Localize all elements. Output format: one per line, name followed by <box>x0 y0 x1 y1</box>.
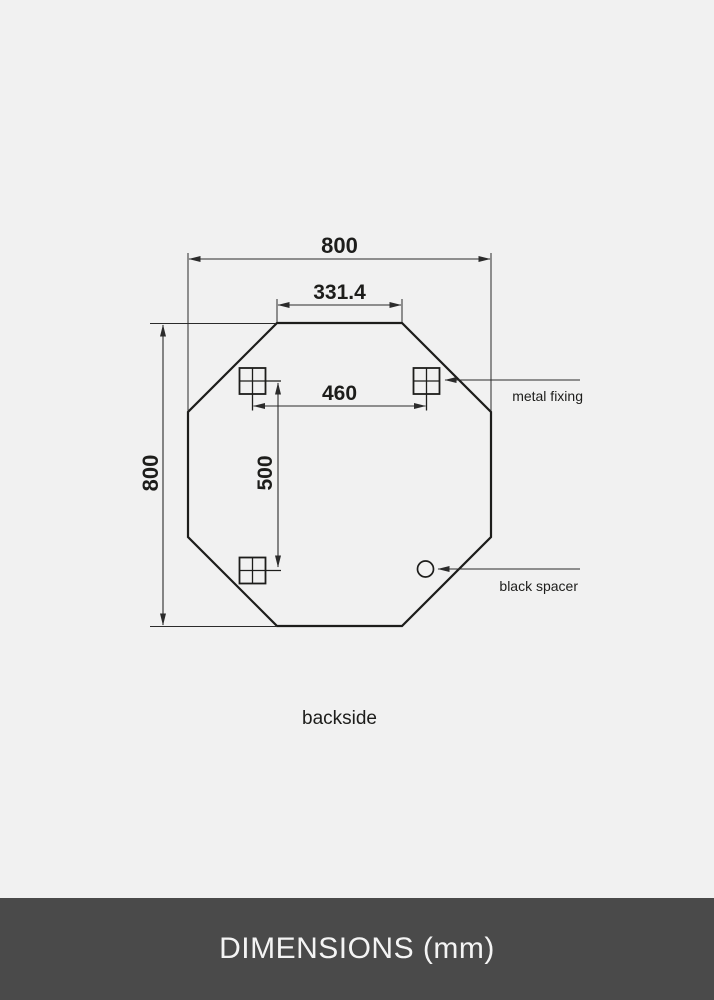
dimension-label-overall-height: 800 <box>138 455 163 492</box>
dimension-diagram: 800 331.4 800 460 500 <box>0 0 714 898</box>
callout-label-metal-fixing: metal fixing <box>512 388 583 404</box>
view-label: backside <box>302 708 377 729</box>
callout-black-spacer: black spacer <box>438 569 580 594</box>
metal-fixing-marker-top-right <box>414 368 440 411</box>
dimension-top-edge: 331.4 <box>277 281 402 322</box>
callout-label-black-spacer: black spacer <box>499 578 578 594</box>
metal-fixing-marker-bottom-left <box>240 558 282 584</box>
footer-title: DIMENSIONS (mm) <box>219 932 495 966</box>
dimension-label-overall-width: 800 <box>321 233 358 258</box>
dimension-label-fixing-span-vertical: 500 <box>254 455 277 490</box>
mirror-outline <box>188 323 491 626</box>
dimension-label-fixing-span-horizontal: 460 <box>322 382 357 405</box>
footer-bar: DIMENSIONS (mm) <box>0 898 714 1000</box>
callout-metal-fixing: metal fixing <box>445 380 583 404</box>
metal-fixing-marker-top-left <box>240 368 282 411</box>
dimension-fixing-span-vertical: 500 <box>254 383 278 567</box>
dimension-label-top-edge: 331.4 <box>313 281 366 304</box>
black-spacer-marker <box>418 561 434 577</box>
dimension-fixing-span-horizontal: 460 <box>254 382 426 406</box>
product-dimension-sheet: 800 331.4 800 460 500 <box>0 0 714 1000</box>
